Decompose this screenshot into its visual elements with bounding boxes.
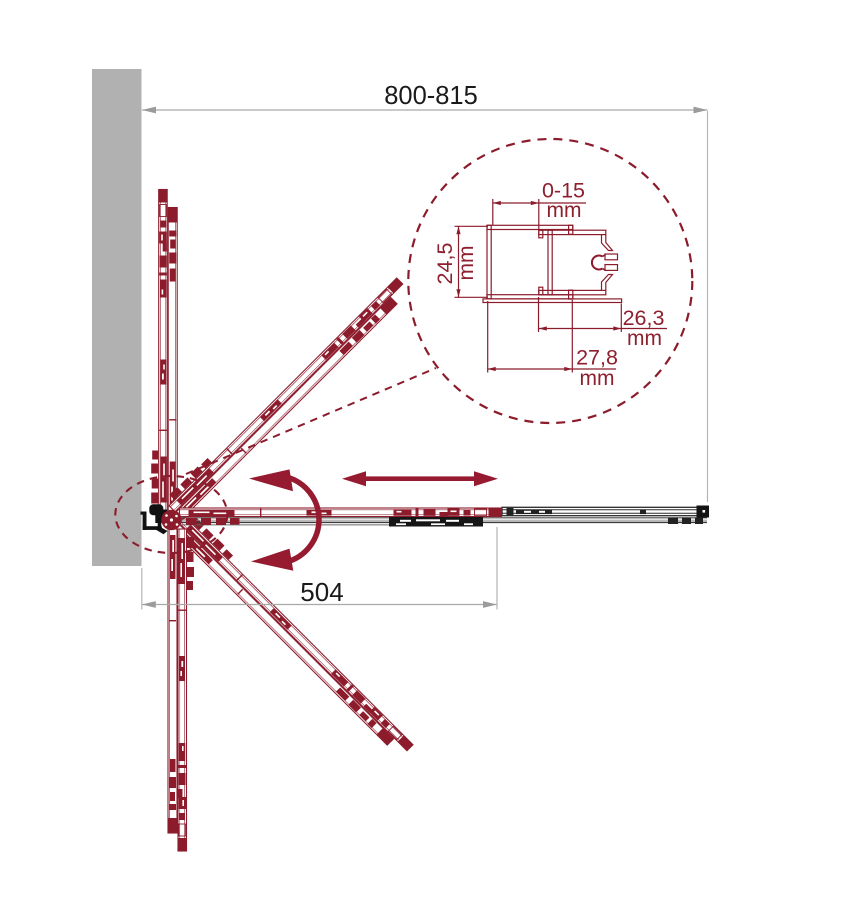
svg-text:mm: mm [455,246,478,281]
svg-text:800-815: 800-815 [384,82,478,110]
svg-text:27,8: 27,8 [576,346,618,370]
svg-text:mm: mm [547,199,582,222]
svg-text:mm: mm [580,367,615,390]
svg-text:24,5: 24,5 [433,243,457,285]
svg-text:504: 504 [300,577,343,607]
svg-text:mm: mm [627,327,662,350]
